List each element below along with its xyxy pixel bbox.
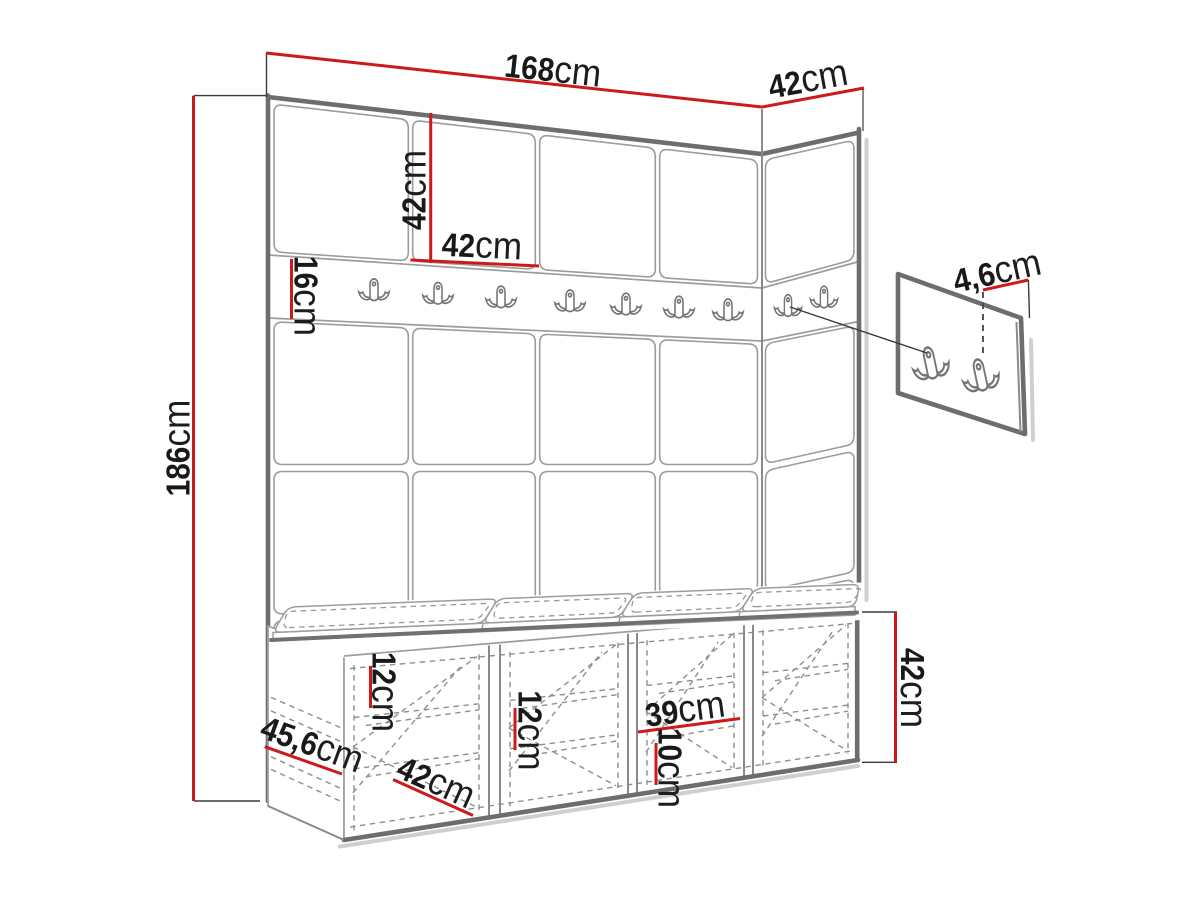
svg-text:16cm: 16cm	[285, 256, 327, 336]
svg-text:12cm: 12cm	[509, 690, 551, 770]
svg-text:12cm: 12cm	[363, 652, 405, 732]
svg-text:42cm: 42cm	[892, 648, 934, 728]
svg-text:186cm: 186cm	[157, 400, 199, 497]
svg-text:42cm: 42cm	[441, 223, 523, 269]
svg-text:10cm: 10cm	[649, 728, 691, 808]
svg-text:42cm: 42cm	[393, 150, 435, 230]
